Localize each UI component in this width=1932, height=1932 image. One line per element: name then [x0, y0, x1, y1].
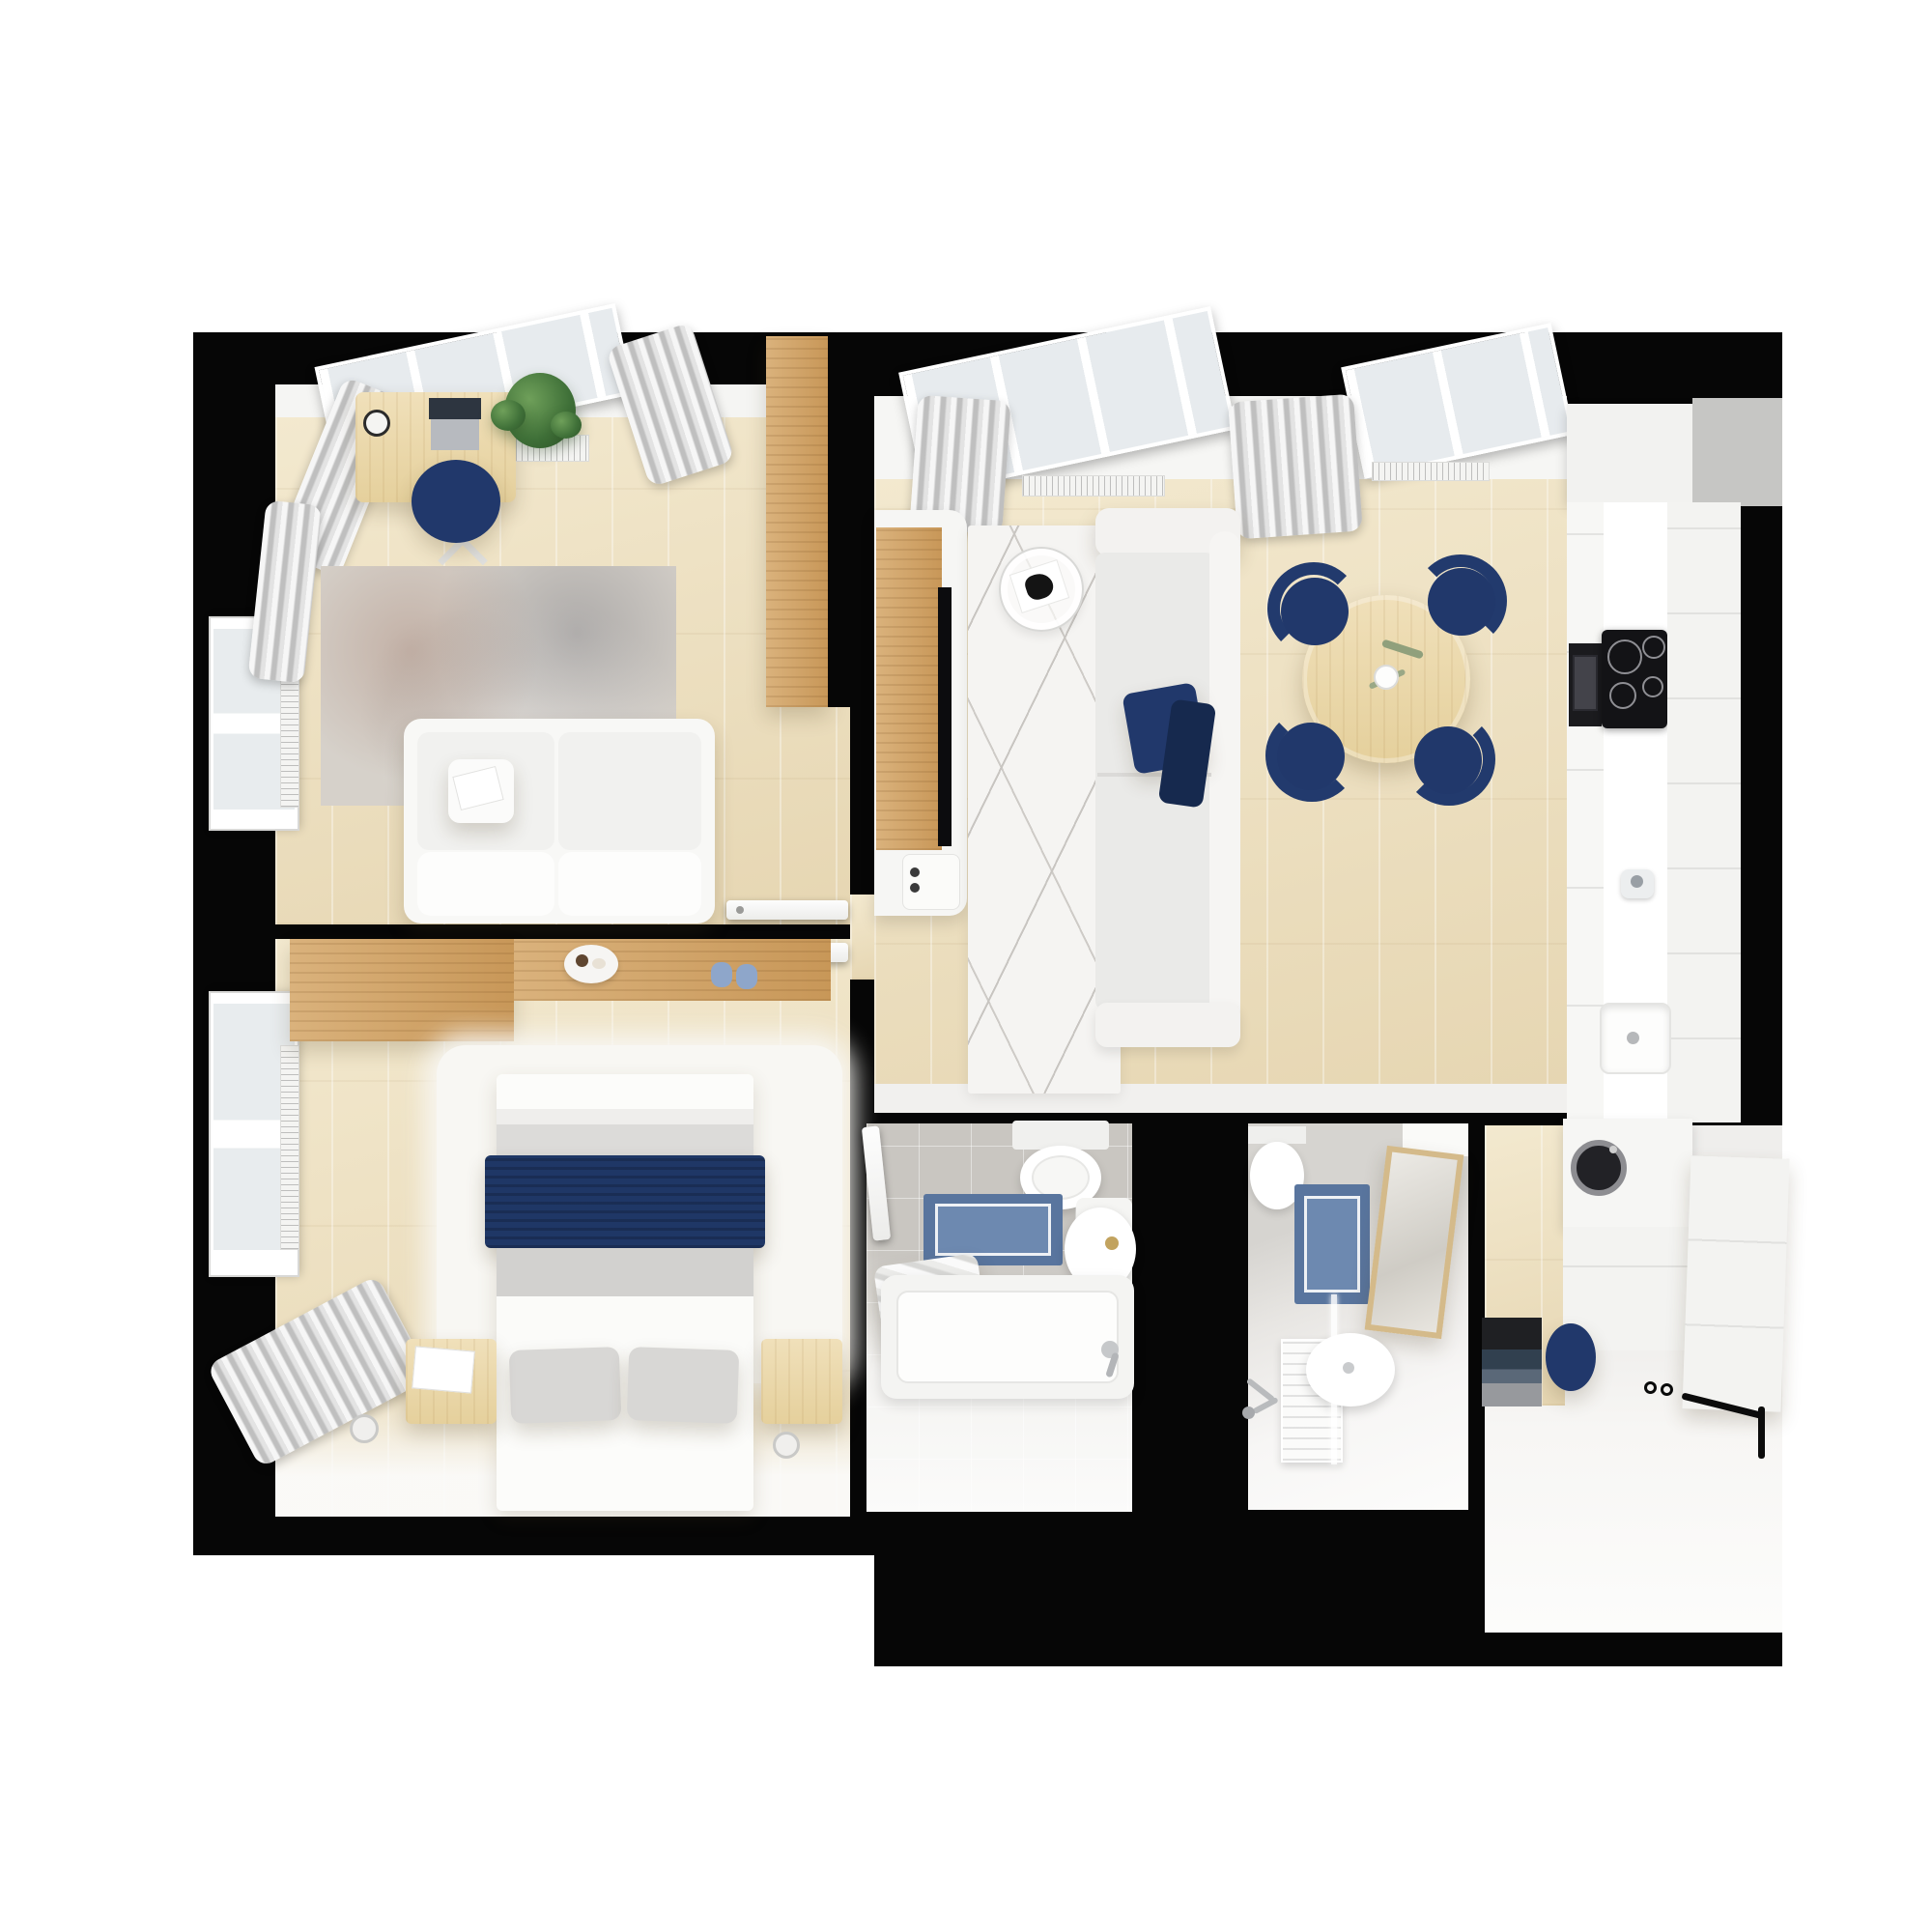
- bed-foot-band: [497, 1124, 753, 1155]
- bathroom-mat-inner: [935, 1204, 1051, 1256]
- desk-lamp: [363, 410, 390, 437]
- cooktop-burner-1: [1607, 639, 1642, 674]
- nightstand-right: [761, 1339, 842, 1424]
- shower-faucet-head: [1242, 1406, 1255, 1419]
- living-sofa-armrest: [1095, 1003, 1240, 1047]
- bed-gray-duvet: [497, 1248, 753, 1296]
- entry-door-handle-left: [1644, 1381, 1657, 1394]
- entry-door-swing-line-end: [1758, 1406, 1765, 1459]
- entry-closet-door: [1682, 1155, 1789, 1411]
- living-radiator-left: [1022, 475, 1165, 497]
- shower-room-sink-drain: [1343, 1362, 1354, 1374]
- hall-doorway-floor: [850, 895, 874, 980]
- nightstand-left-lamp: [350, 1414, 379, 1443]
- floor-plan-canvas: [0, 0, 1932, 1932]
- office-wardrobe: [766, 336, 828, 707]
- bed-white-sheet: [497, 1296, 753, 1350]
- office-wardrobe-shadow-gap: [828, 336, 851, 707]
- living-curtain-middle: [1228, 394, 1363, 540]
- bedroom-dresser-left: [290, 939, 514, 1041]
- bed-navy-blanket: [485, 1155, 765, 1248]
- laptop-keyboard: [431, 419, 479, 450]
- bedroom-window-radiator: [280, 1045, 299, 1250]
- tv-radio: [902, 854, 960, 910]
- dresser-tray-cup-light: [592, 958, 606, 969]
- entry-doormat: [1482, 1318, 1542, 1406]
- tv-screen: [938, 587, 952, 846]
- office-plant-leaf-right: [551, 412, 582, 439]
- entry-door-handle-right: [1661, 1383, 1673, 1396]
- shower-room-mat-inner: [1304, 1196, 1360, 1293]
- dresser-tray-cup-dark: [576, 954, 588, 967]
- bed-pillow-right: [627, 1347, 740, 1424]
- entry-pouf: [1546, 1323, 1596, 1391]
- bedroom-dresser-right: [514, 939, 831, 1001]
- office-plant-leaf-left: [491, 400, 526, 431]
- nightstand-left-book: [412, 1346, 475, 1393]
- office-door-handle: [736, 906, 744, 914]
- office-chair-seat: [412, 460, 500, 543]
- office-door: [726, 900, 848, 920]
- slipper-left: [711, 962, 732, 987]
- shower-glass-panel: [1331, 1294, 1337, 1464]
- washing-machine-door: [1571, 1140, 1627, 1196]
- kitchen-upper-cabinet: [1567, 404, 1692, 502]
- bed-frame-edge: [497, 1109, 753, 1124]
- dining-chair-top-left-seat: [1281, 578, 1349, 645]
- cooktop-burner-4: [1642, 676, 1663, 697]
- living-radiator-right: [1372, 462, 1490, 481]
- tv-radio-knob-bottom: [910, 883, 920, 893]
- kitchen-cabinet-column-right: [1667, 502, 1741, 1122]
- dining-chair-bottom-right-seat: [1414, 726, 1482, 794]
- tv-radio-knob-top: [910, 867, 920, 877]
- cooktop-burner-3: [1642, 636, 1665, 659]
- bathroom-sink-faucet: [1105, 1236, 1119, 1250]
- dining-table-vase: [1374, 665, 1399, 690]
- office-sofa-back-left: [417, 852, 554, 916]
- washing-machine-button: [1609, 1146, 1617, 1153]
- dining-chair-top-right-seat: [1428, 568, 1495, 636]
- kitchen-cabinet-column-left: [1567, 502, 1604, 1122]
- living-sofa-back: [1209, 531, 1240, 1026]
- tv-wood-panel: [876, 527, 942, 850]
- laptop-screen: [429, 398, 481, 419]
- kitchen-upper-side-panel: [1692, 398, 1782, 506]
- office-sofa-back-right: [558, 852, 701, 916]
- kitchen-sink-drain: [1627, 1032, 1639, 1044]
- cooktop-burner-2: [1609, 682, 1636, 709]
- kitchen-faucet-spout: [1631, 875, 1643, 888]
- dining-chair-bottom-left-seat: [1277, 723, 1345, 790]
- bed-pillow-left: [509, 1347, 622, 1424]
- nightstand-right-lamp: [773, 1432, 800, 1459]
- office-sofa-seat-right: [558, 732, 701, 850]
- slipper-right: [736, 964, 757, 989]
- kitchen-oven-window: [1573, 655, 1598, 711]
- dresser-tray: [564, 945, 618, 983]
- bathtub-basin: [896, 1291, 1119, 1383]
